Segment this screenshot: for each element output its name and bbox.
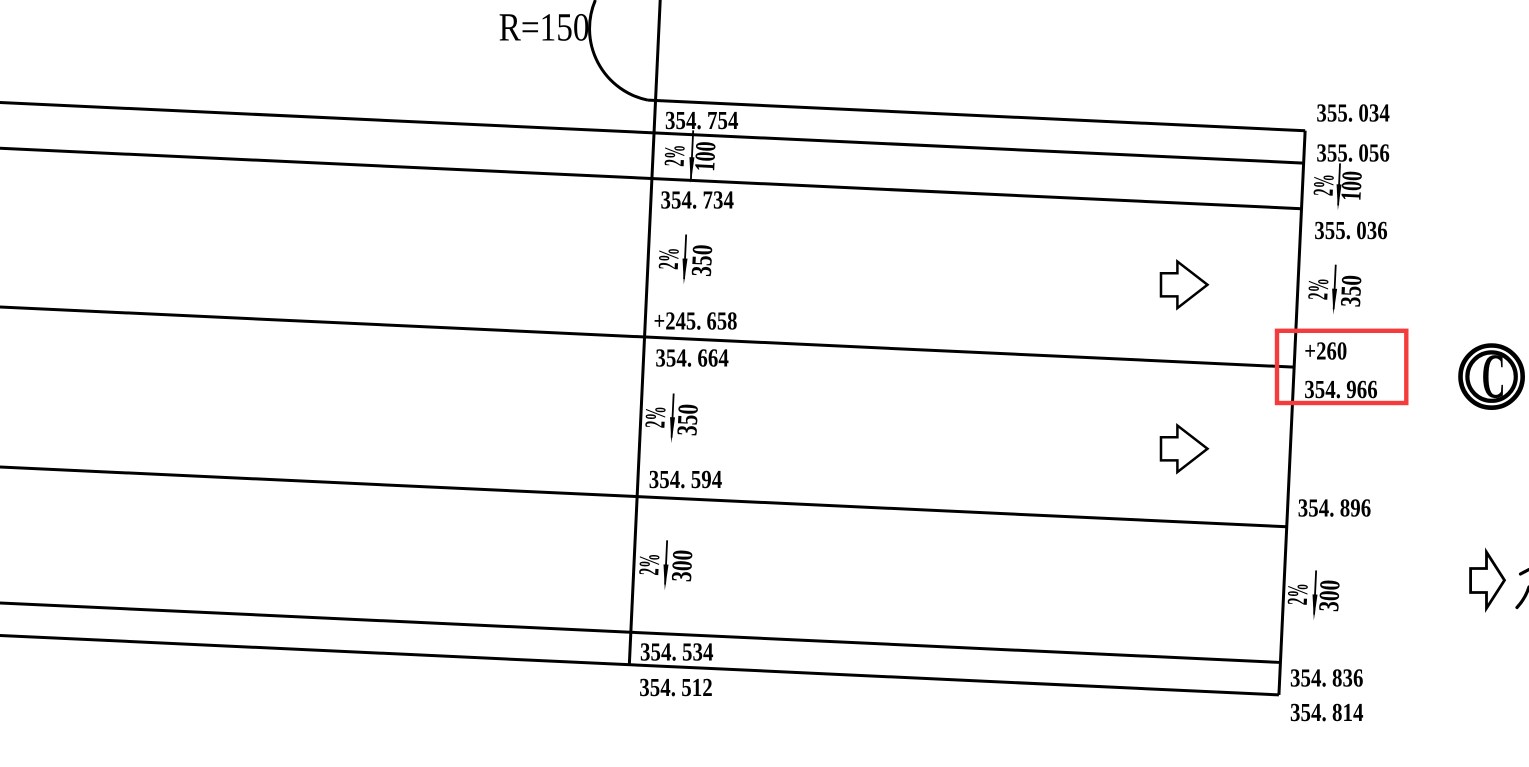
svg-text:300: 300 [666, 549, 699, 582]
svg-text:+245. 658: +245. 658 [654, 307, 738, 336]
svg-text:100: 100 [689, 141, 722, 172]
svg-text:2%: 2% [1282, 582, 1315, 605]
svg-text:354. 836: 354. 836 [1290, 664, 1364, 693]
svg-text:100: 100 [1335, 170, 1368, 201]
svg-text:2%: 2% [659, 144, 692, 167]
svg-text:354. 814: 354. 814 [1290, 698, 1364, 727]
svg-text:R=150: R=150 [499, 4, 590, 49]
svg-text:354. 896: 354. 896 [1298, 494, 1372, 523]
svg-text:354. 534: 354. 534 [640, 638, 714, 667]
svg-text:C: C [1482, 340, 1506, 411]
svg-text:354. 594: 354. 594 [649, 465, 723, 494]
svg-text:350: 350 [1335, 274, 1368, 307]
svg-text:354. 966: 354. 966 [1304, 375, 1378, 404]
svg-text:350: 350 [671, 403, 704, 436]
svg-text:355. 036: 355. 036 [1314, 216, 1388, 245]
svg-text:354. 734: 354. 734 [661, 186, 735, 215]
svg-text:2%: 2% [639, 405, 672, 428]
svg-text:2%: 2% [653, 247, 686, 270]
svg-text:350: 350 [686, 244, 719, 277]
svg-text:354. 664: 354. 664 [655, 343, 729, 372]
svg-text:355. 034: 355. 034 [1316, 98, 1390, 127]
svg-text:+260: +260 [1304, 336, 1347, 365]
svg-text:2%: 2% [633, 553, 666, 576]
svg-text:2%: 2% [1302, 277, 1335, 300]
svg-text:300: 300 [1313, 579, 1346, 612]
svg-text:354. 754: 354. 754 [665, 106, 739, 135]
svg-text:354. 512: 354. 512 [639, 673, 713, 702]
svg-text:355. 056: 355. 056 [1316, 139, 1390, 168]
